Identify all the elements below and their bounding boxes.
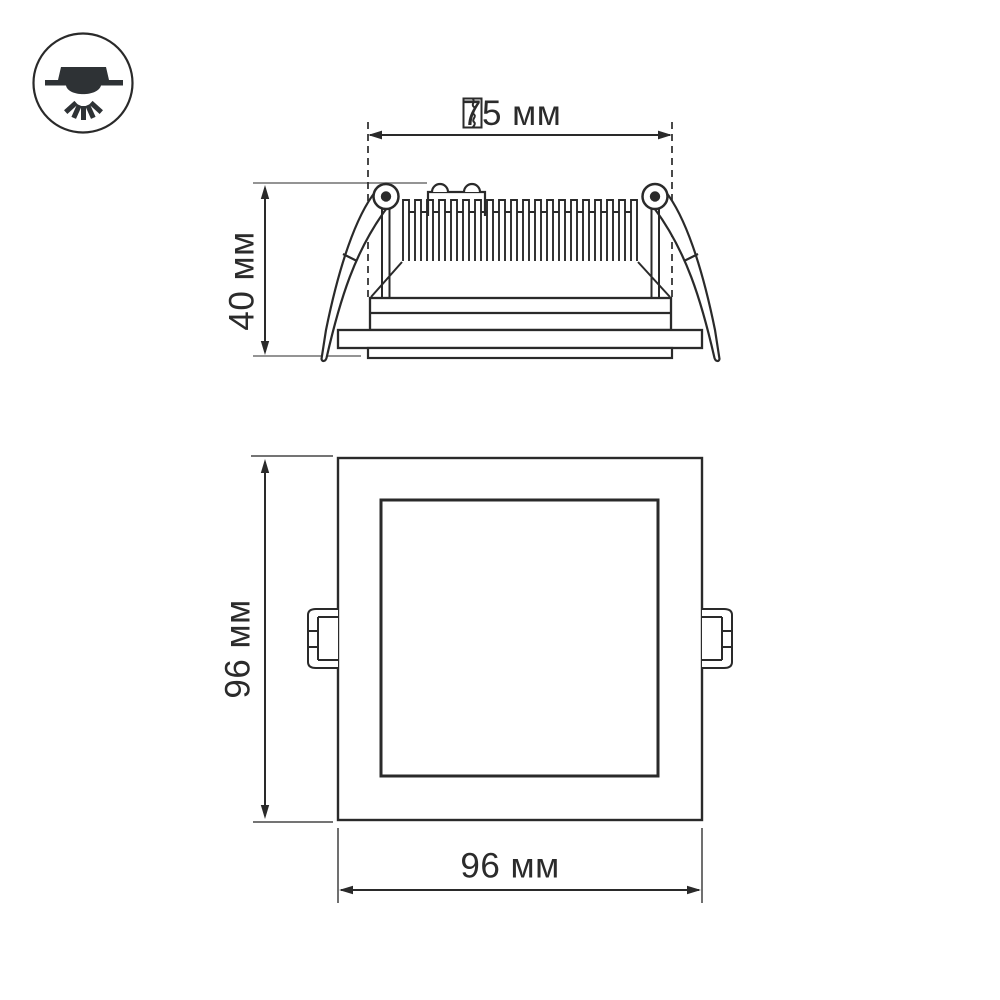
fixture-body [370, 298, 671, 330]
arrowhead-up [261, 185, 269, 199]
arrowhead-left [339, 886, 353, 894]
terminal-screw-left [432, 184, 448, 192]
panel-width-dimension-line [339, 886, 701, 894]
arrowhead-right [658, 131, 672, 140]
heatsink-base-struts [371, 262, 670, 297]
recessed-downlight-icon [28, 28, 138, 138]
side-view [253, 122, 720, 361]
panel-height-label: 96 мм [221, 599, 256, 698]
clip-pivot-left [374, 184, 399, 209]
front-view [251, 456, 732, 903]
arrowhead-up [261, 459, 269, 473]
mounting-flange [338, 330, 702, 348]
panel-height-dimension-line [261, 459, 269, 819]
terminal-screw-right [464, 184, 480, 192]
height-dimension-line [261, 185, 269, 355]
glass-panel-edge [368, 348, 672, 358]
cutout-width-label: 75 мм [462, 96, 561, 131]
panel-inner-window [381, 500, 658, 776]
panel-width-label: 96 мм [460, 849, 559, 884]
arrowhead-down [261, 805, 269, 819]
panel-clip-left [308, 609, 338, 668]
arrowhead-down [261, 341, 269, 355]
heatsink-fins [403, 200, 637, 261]
arrowhead-right [687, 886, 701, 894]
cutout-dimension-label-group: 75 мм [462, 94, 483, 132]
fixture-height-label: 40 мм [225, 231, 260, 330]
arrowhead-left [368, 131, 382, 140]
clip-pivot-right [643, 184, 668, 209]
panel-clip-right [702, 609, 732, 668]
